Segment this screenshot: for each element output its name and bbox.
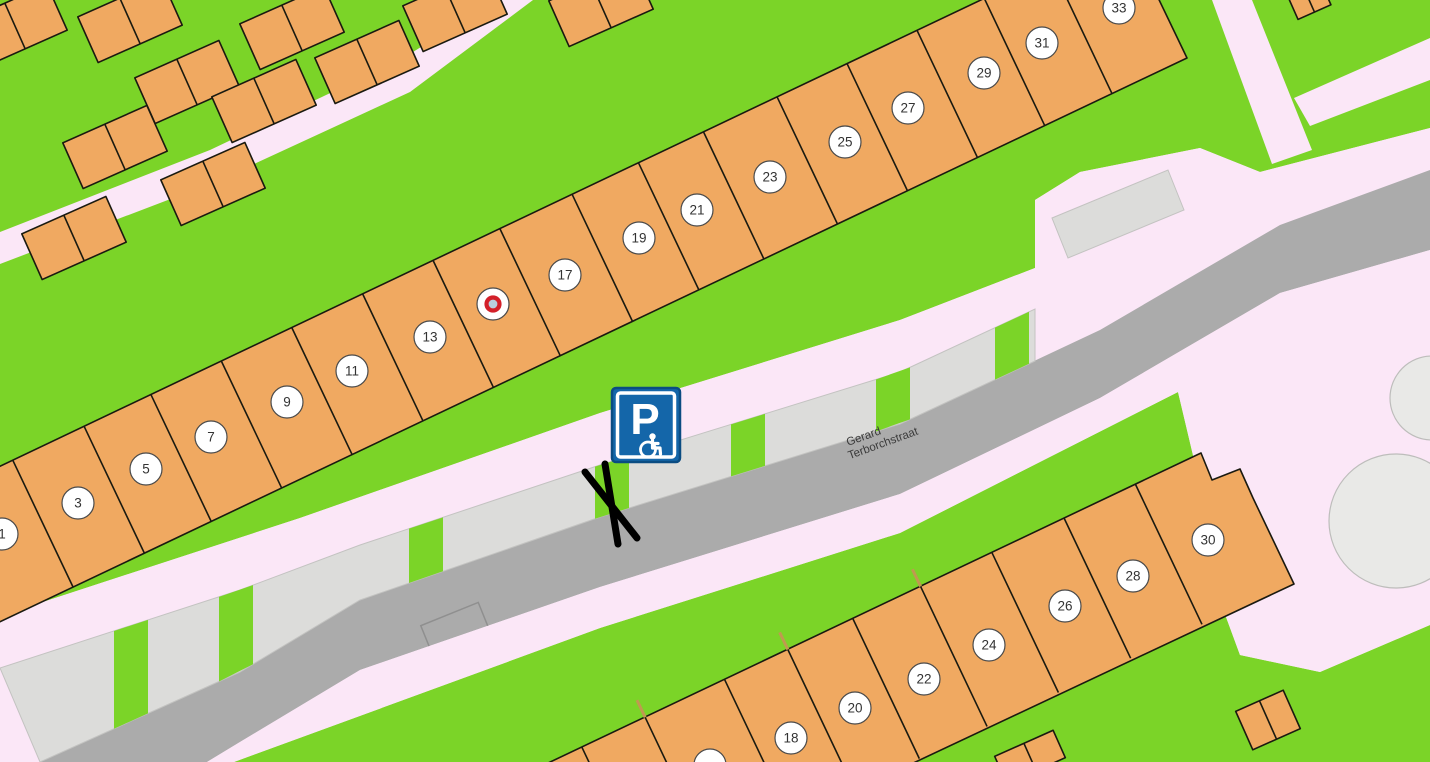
house-marker[interactable]: 11 [336, 355, 368, 387]
house-marker[interactable]: 18 [775, 722, 807, 754]
svg-text:7: 7 [207, 430, 215, 445]
svg-text:26: 26 [1057, 599, 1072, 614]
svg-text:27: 27 [900, 101, 915, 116]
svg-text:3: 3 [74, 496, 82, 511]
svg-text:19: 19 [631, 231, 646, 246]
svg-text:1: 1 [0, 527, 6, 542]
svg-text:28: 28 [1125, 569, 1140, 584]
svg-text:22: 22 [916, 672, 931, 687]
house-marker[interactable]: 20 [839, 692, 871, 724]
house-marker[interactable]: 26 [1049, 590, 1081, 622]
svg-text:29: 29 [976, 66, 991, 81]
house-marker[interactable]: 21 [681, 194, 713, 226]
svg-text:33: 33 [1111, 1, 1126, 16]
svg-text:18: 18 [783, 731, 798, 746]
selected-house-marker[interactable] [477, 288, 509, 320]
house-marker[interactable]: 28 [1117, 560, 1149, 592]
house-marker[interactable]: 13 [414, 321, 446, 353]
svg-text:21: 21 [689, 203, 704, 218]
svg-text:11: 11 [345, 364, 359, 379]
svg-text:17: 17 [557, 268, 572, 283]
house-marker[interactable]: 24 [973, 629, 1005, 661]
house-marker[interactable]: 30 [1192, 524, 1224, 556]
house-marker[interactable]: 5 [130, 453, 162, 485]
svg-text:31: 31 [1034, 36, 1049, 51]
house-marker[interactable]: 7 [195, 421, 227, 453]
svg-text:5: 5 [142, 462, 150, 477]
house-marker[interactable]: 29 [968, 57, 1000, 89]
svg-text:20: 20 [847, 701, 862, 716]
svg-text:24: 24 [981, 638, 997, 653]
svg-text:23: 23 [762, 170, 777, 185]
house-marker[interactable]: 31 [1026, 27, 1058, 59]
house-marker[interactable]: 22 [908, 663, 940, 695]
svg-text:9: 9 [283, 395, 291, 410]
house-marker[interactable]: 27 [892, 92, 924, 124]
house-marker[interactable]: 23 [754, 161, 786, 193]
svg-text:30: 30 [1200, 533, 1215, 548]
svg-text:25: 25 [837, 135, 852, 150]
house-marker[interactable]: 17 [549, 259, 581, 291]
map-viewport[interactable]: Gerard Terborchstraat 135791113171921232… [0, 0, 1430, 762]
svg-text:13: 13 [422, 330, 437, 345]
house-marker[interactable]: 9 [271, 386, 303, 418]
house-marker[interactable]: 25 [829, 126, 861, 158]
house-marker[interactable]: 19 [623, 222, 655, 254]
house-marker[interactable]: 3 [62, 487, 94, 519]
disabled-parking-sign[interactable]: P [612, 388, 680, 462]
